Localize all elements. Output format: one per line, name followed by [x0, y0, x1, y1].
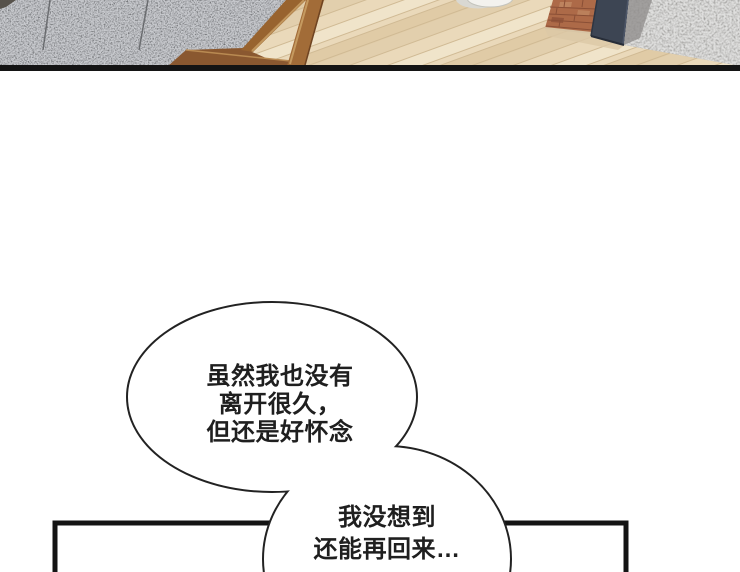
scene-panel-border: [0, 65, 740, 71]
bubble1-line-1: 虽然我也没有: [207, 362, 354, 390]
bubble2-line-2: 还能再回来…: [314, 535, 461, 563]
bubble1-line-3: 但还是好怀念: [207, 418, 354, 446]
comic-canvas: 虽然我也没有 离开很久， 但还是好怀念 我没想到 还能再回来…: [0, 0, 740, 572]
brick-wall: [545, 0, 597, 33]
dark-pillar: [591, 0, 629, 45]
brick-light-1: [559, 2, 572, 7]
comic-page: 虽然我也没有 离开很久， 但还是好怀念 我没想到 还能再回来…: [0, 0, 740, 572]
scene-panel: [0, 0, 740, 66]
bubble2-line-1: 我没想到: [338, 504, 436, 531]
bubble1-line-2: 离开很久，: [219, 390, 342, 418]
